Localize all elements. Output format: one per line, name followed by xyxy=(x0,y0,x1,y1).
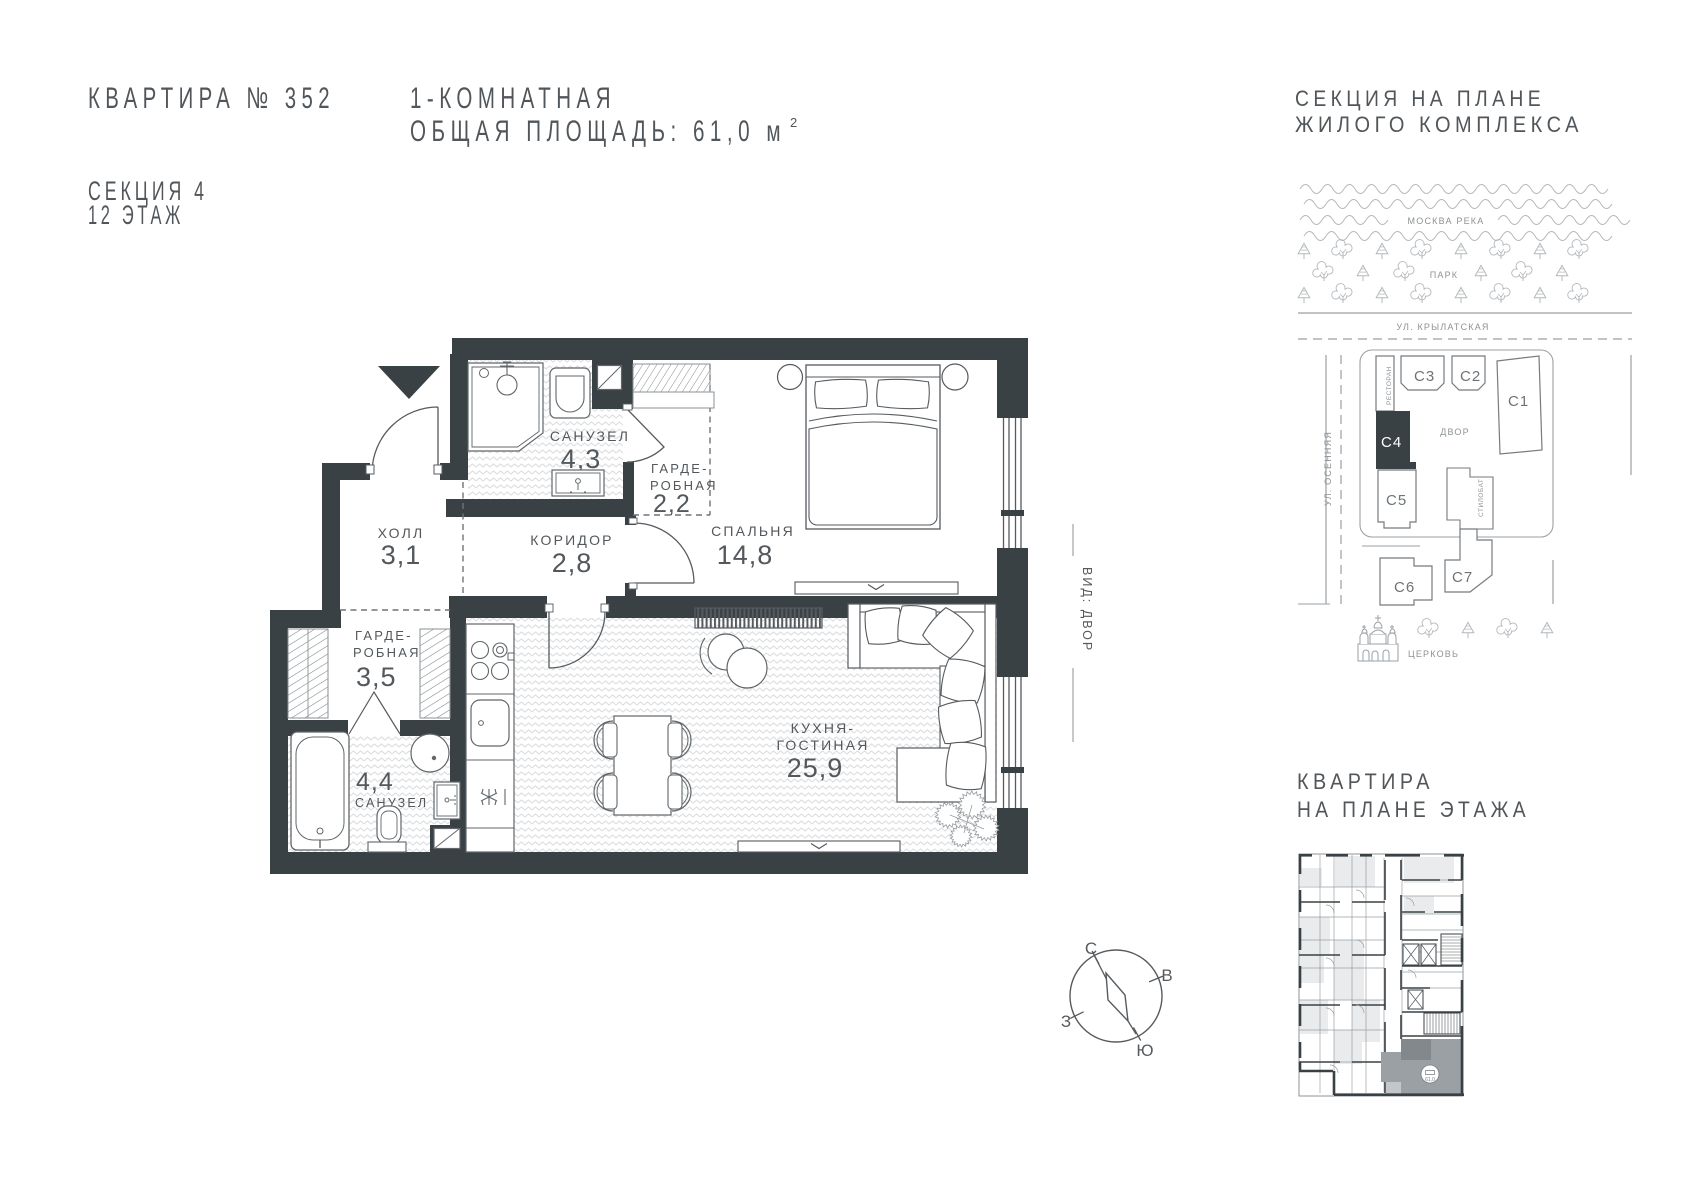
svg-text:З: З xyxy=(1061,1012,1071,1031)
svg-text:ОБЩАЯ ПЛОЩАДЬ: 61,0 м: ОБЩАЯ ПЛОЩАДЬ: 61,0 м xyxy=(410,115,786,148)
svg-text:СЕКЦИЯ НА ПЛАНЕ: СЕКЦИЯ НА ПЛАНЕ xyxy=(1295,86,1545,111)
svg-text:61,0: 61,0 xyxy=(1425,1077,1435,1083)
svg-text:УЛ. ОСЕННЯЯ: УЛ. ОСЕННЯЯ xyxy=(1323,431,1333,506)
svg-text:12 ЭТАЖ: 12 ЭТАЖ xyxy=(88,200,184,230)
svg-text:1-КОМНАТНАЯ: 1-КОМНАТНАЯ xyxy=(410,82,616,115)
svg-text:ДВОР: ДВОР xyxy=(1440,427,1470,437)
svg-text:ВИД: ДВОР: ВИД: ДВОР xyxy=(1080,567,1094,652)
svg-text:В: В xyxy=(1161,966,1172,985)
svg-text:ХОЛЛ: ХОЛЛ xyxy=(378,525,425,541)
svg-text:КУХНЯ-: КУХНЯ- xyxy=(791,720,856,736)
svg-text:КОРИДОР: КОРИДОР xyxy=(530,532,613,548)
svg-text:КВАРТИРА № 352: КВАРТИРА № 352 xyxy=(88,82,335,115)
svg-text:КВАРТИРА: КВАРТИРА xyxy=(1297,769,1434,794)
svg-text:С2: С2 xyxy=(1460,368,1481,385)
svg-text:ПАРК: ПАРК xyxy=(1430,270,1459,280)
svg-text:РОБНАЯ: РОБНАЯ xyxy=(353,645,421,660)
svg-text:ЖИЛОГО КОМПЛЕКСА: ЖИЛОГО КОМПЛЕКСА xyxy=(1295,112,1583,137)
svg-text:СПАЛЬНЯ: СПАЛЬНЯ xyxy=(711,523,795,539)
svg-text:С: С xyxy=(1085,939,1097,958)
svg-text:С7: С7 xyxy=(1452,569,1473,586)
svg-text:Ю: Ю xyxy=(1136,1041,1153,1060)
svg-text:4,4: 4,4 xyxy=(356,768,394,796)
svg-text:САНУЗЕЛ: САНУЗЕЛ xyxy=(550,428,630,444)
svg-text:3,1: 3,1 xyxy=(381,540,422,570)
svg-text:НА ПЛАНЕ ЭТАЖА: НА ПЛАНЕ ЭТАЖА xyxy=(1297,797,1530,822)
svg-text:С3: С3 xyxy=(1414,368,1435,385)
svg-text:РЕСТОРАН: РЕСТОРАН xyxy=(1386,366,1393,405)
svg-text:2: 2 xyxy=(790,115,797,130)
svg-text:СТИЛОБАТ: СТИЛОБАТ xyxy=(1478,479,1485,517)
svg-text:С4: С4 xyxy=(1381,434,1402,451)
svg-text:С6: С6 xyxy=(1394,579,1415,596)
svg-text:С1: С1 xyxy=(1508,393,1529,410)
svg-text:ГОСТИНАЯ: ГОСТИНАЯ xyxy=(776,737,869,753)
svg-text:25,9: 25,9 xyxy=(787,753,844,783)
svg-text:ГАРДЕ-: ГАРДЕ- xyxy=(355,628,413,643)
svg-text:2,2: 2,2 xyxy=(653,490,691,518)
svg-text:УЛ. КРЫЛАТСКАЯ: УЛ. КРЫЛАТСКАЯ xyxy=(1396,322,1489,332)
svg-text:МОСКВА РЕКА: МОСКВА РЕКА xyxy=(1408,216,1485,226)
svg-text:14,8: 14,8 xyxy=(717,540,774,570)
svg-text:С5: С5 xyxy=(1386,492,1407,509)
svg-text:2,8: 2,8 xyxy=(552,548,593,578)
svg-text:3,5: 3,5 xyxy=(356,662,397,692)
svg-text:ГАРДЕ-: ГАРДЕ- xyxy=(651,461,709,476)
svg-text:ЦЕРКОВЬ: ЦЕРКОВЬ xyxy=(1408,649,1459,659)
